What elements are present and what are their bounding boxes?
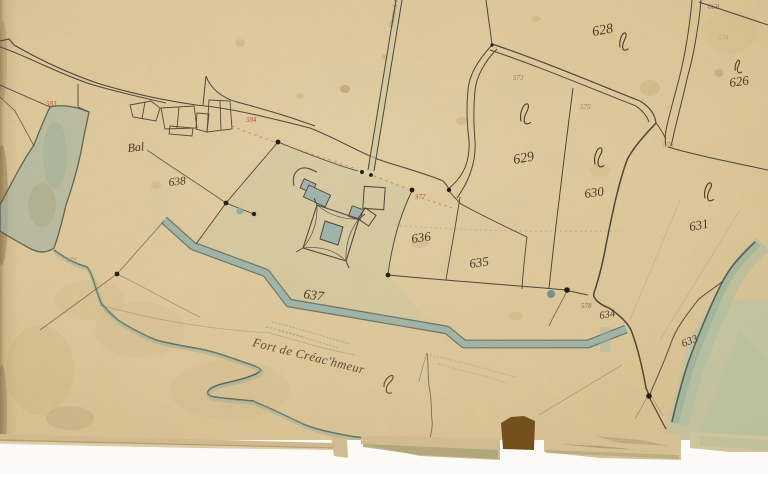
svg-text:575: 575 <box>580 103 591 111</box>
svg-text:576: 576 <box>663 141 674 149</box>
svg-text:638: 638 <box>168 175 187 189</box>
svg-text:635: 635 <box>468 253 490 271</box>
svg-text:637: 637 <box>303 286 326 304</box>
svg-text:583: 583 <box>46 100 57 108</box>
svg-text:636: 636 <box>410 228 432 246</box>
svg-text:579: 579 <box>66 256 77 264</box>
svg-text:573: 573 <box>513 74 524 82</box>
svg-text:630: 630 <box>583 183 605 201</box>
svg-text:584: 584 <box>246 116 257 124</box>
svg-text:Bal: Bal <box>127 139 146 155</box>
svg-text:668: 668 <box>708 2 720 11</box>
svg-text:577: 577 <box>415 193 426 201</box>
svg-text:626: 626 <box>728 72 750 90</box>
svg-text:574: 574 <box>718 34 729 42</box>
svg-text:578: 578 <box>581 302 592 310</box>
